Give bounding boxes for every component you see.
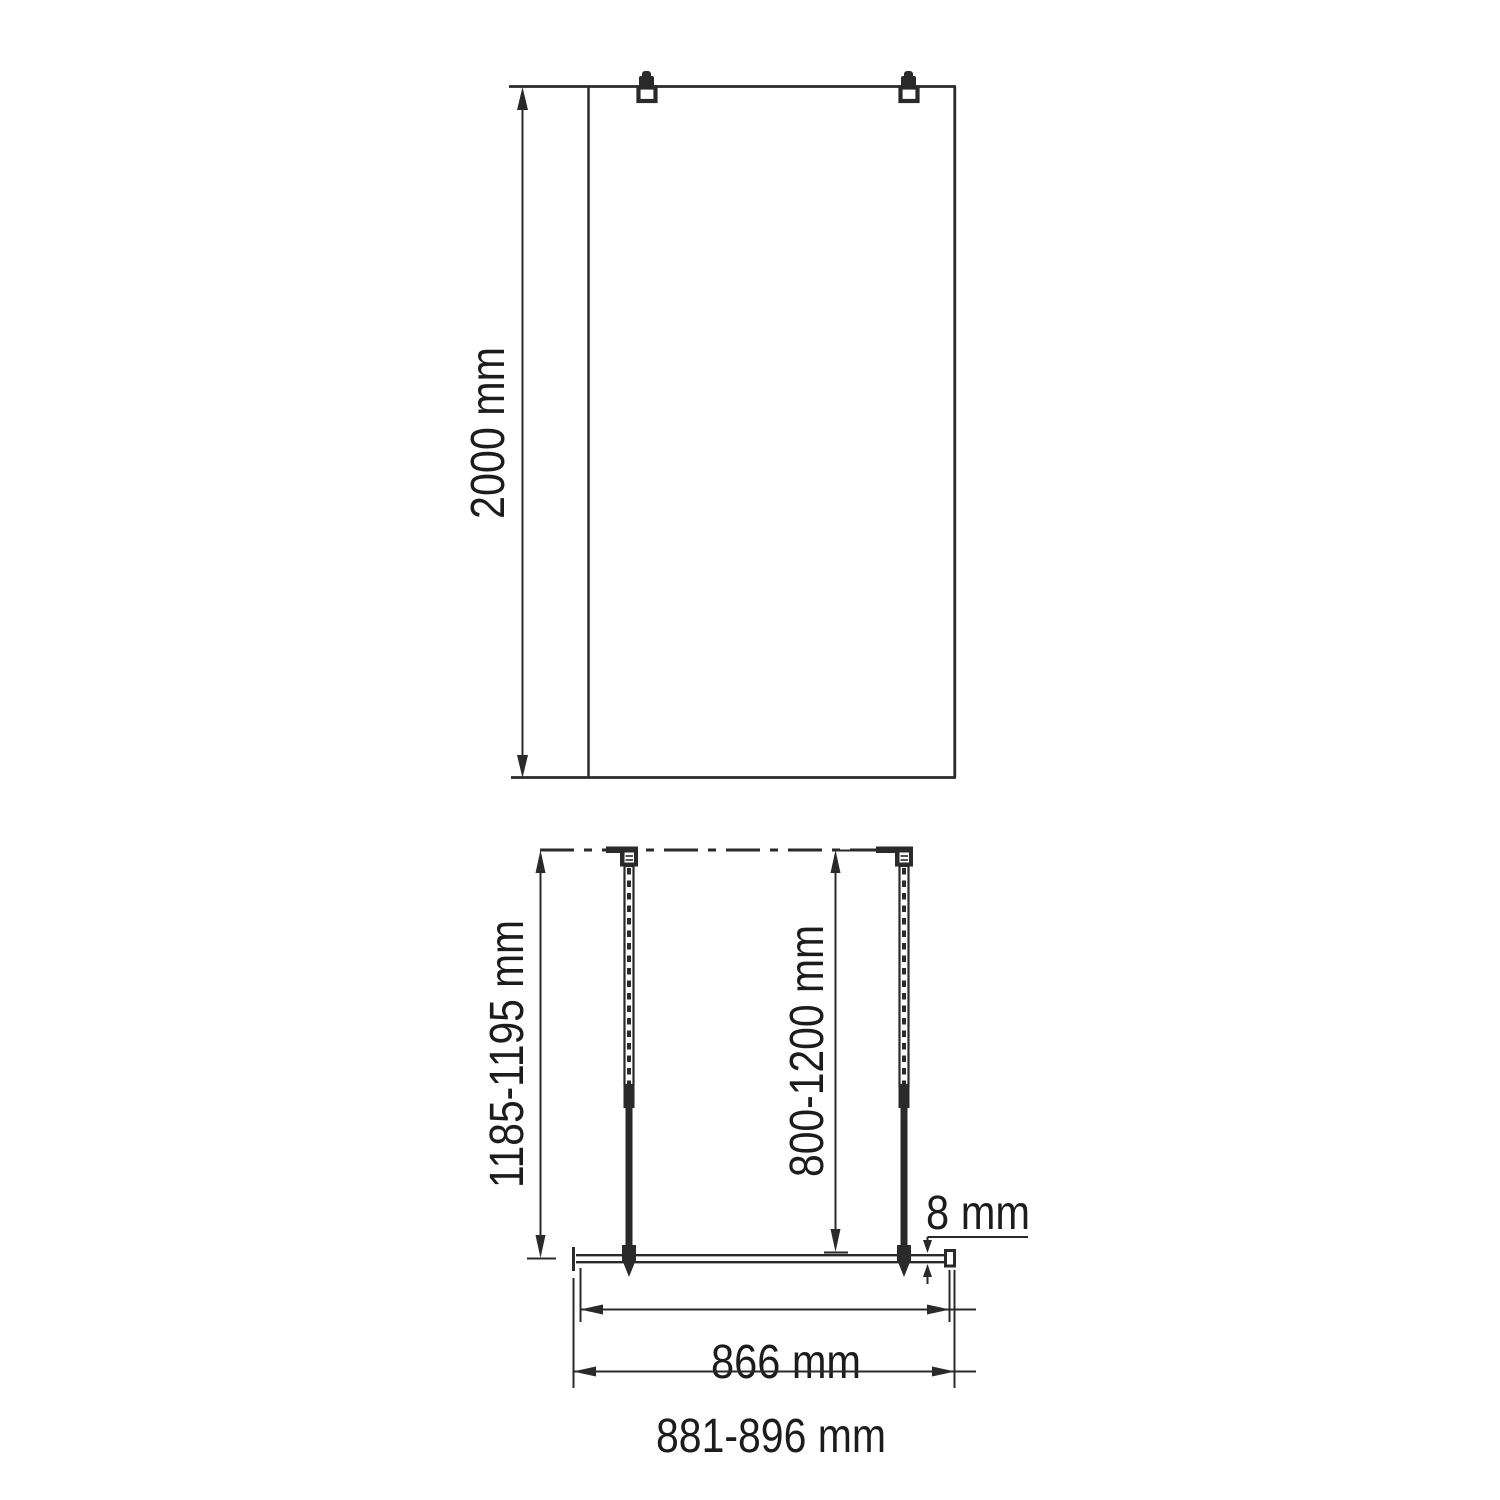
arrow-up-icon [536, 850, 546, 873]
support-bar-left [606, 847, 638, 1278]
bar-overall-label: 1185-1195 mm [481, 920, 534, 1188]
glass-thickness-label: 8 mm [926, 1187, 1030, 1240]
dimension-glass-thickness [923, 1237, 1028, 1284]
glass-clamp-left [639, 71, 656, 101]
arrow-down-icon [536, 1235, 546, 1258]
arrow-up-icon [517, 87, 528, 110]
wall-bracket-hole [900, 853, 910, 863]
arrow-down-icon [831, 1229, 841, 1252]
glass-end-cap-right [946, 1251, 955, 1267]
front-view: 2000 mm [462, 71, 956, 778]
clamp-plate-icon [639, 88, 656, 102]
overall-width-label: 881-896 mm [656, 1410, 886, 1463]
diagram-page: 2000 mm [0, 0, 1500, 1500]
glass-clamp-right [901, 71, 918, 101]
arrow-up-icon [923, 1264, 932, 1277]
bar-clamp-tip [623, 1262, 635, 1277]
clamp-base-icon [901, 76, 916, 87]
bar-clamp-tip [898, 1262, 910, 1277]
clamp-plate-icon [901, 88, 918, 102]
glass-width-label: 866 mm [711, 1336, 861, 1389]
height-dimension-label: 2000 mm [462, 347, 515, 519]
plan-view: 1185-1195 mm 800-1200 mm 8 mm [481, 847, 1030, 1464]
bar-adjust-label: 800-1200 mm [781, 925, 834, 1177]
arrow-up-icon [831, 850, 841, 873]
arrow-right-icon [927, 1305, 950, 1315]
arrow-down-icon [923, 1240, 932, 1253]
arrow-down-icon [517, 755, 528, 778]
arrow-left-icon [573, 1367, 596, 1377]
arrow-right-icon [932, 1367, 955, 1377]
dimension-height-2000 [517, 87, 528, 778]
support-bar-right [876, 847, 913, 1278]
shower-panel-diagram: 2000 mm [0, 0, 1500, 1500]
wall-bracket-hole [625, 853, 635, 863]
bar-rod [626, 1085, 633, 1251]
dimension-glass-width [580, 1305, 976, 1315]
bar-rod [901, 1085, 908, 1251]
clamp-base-icon [639, 76, 654, 87]
arrow-left-icon [580, 1305, 603, 1315]
